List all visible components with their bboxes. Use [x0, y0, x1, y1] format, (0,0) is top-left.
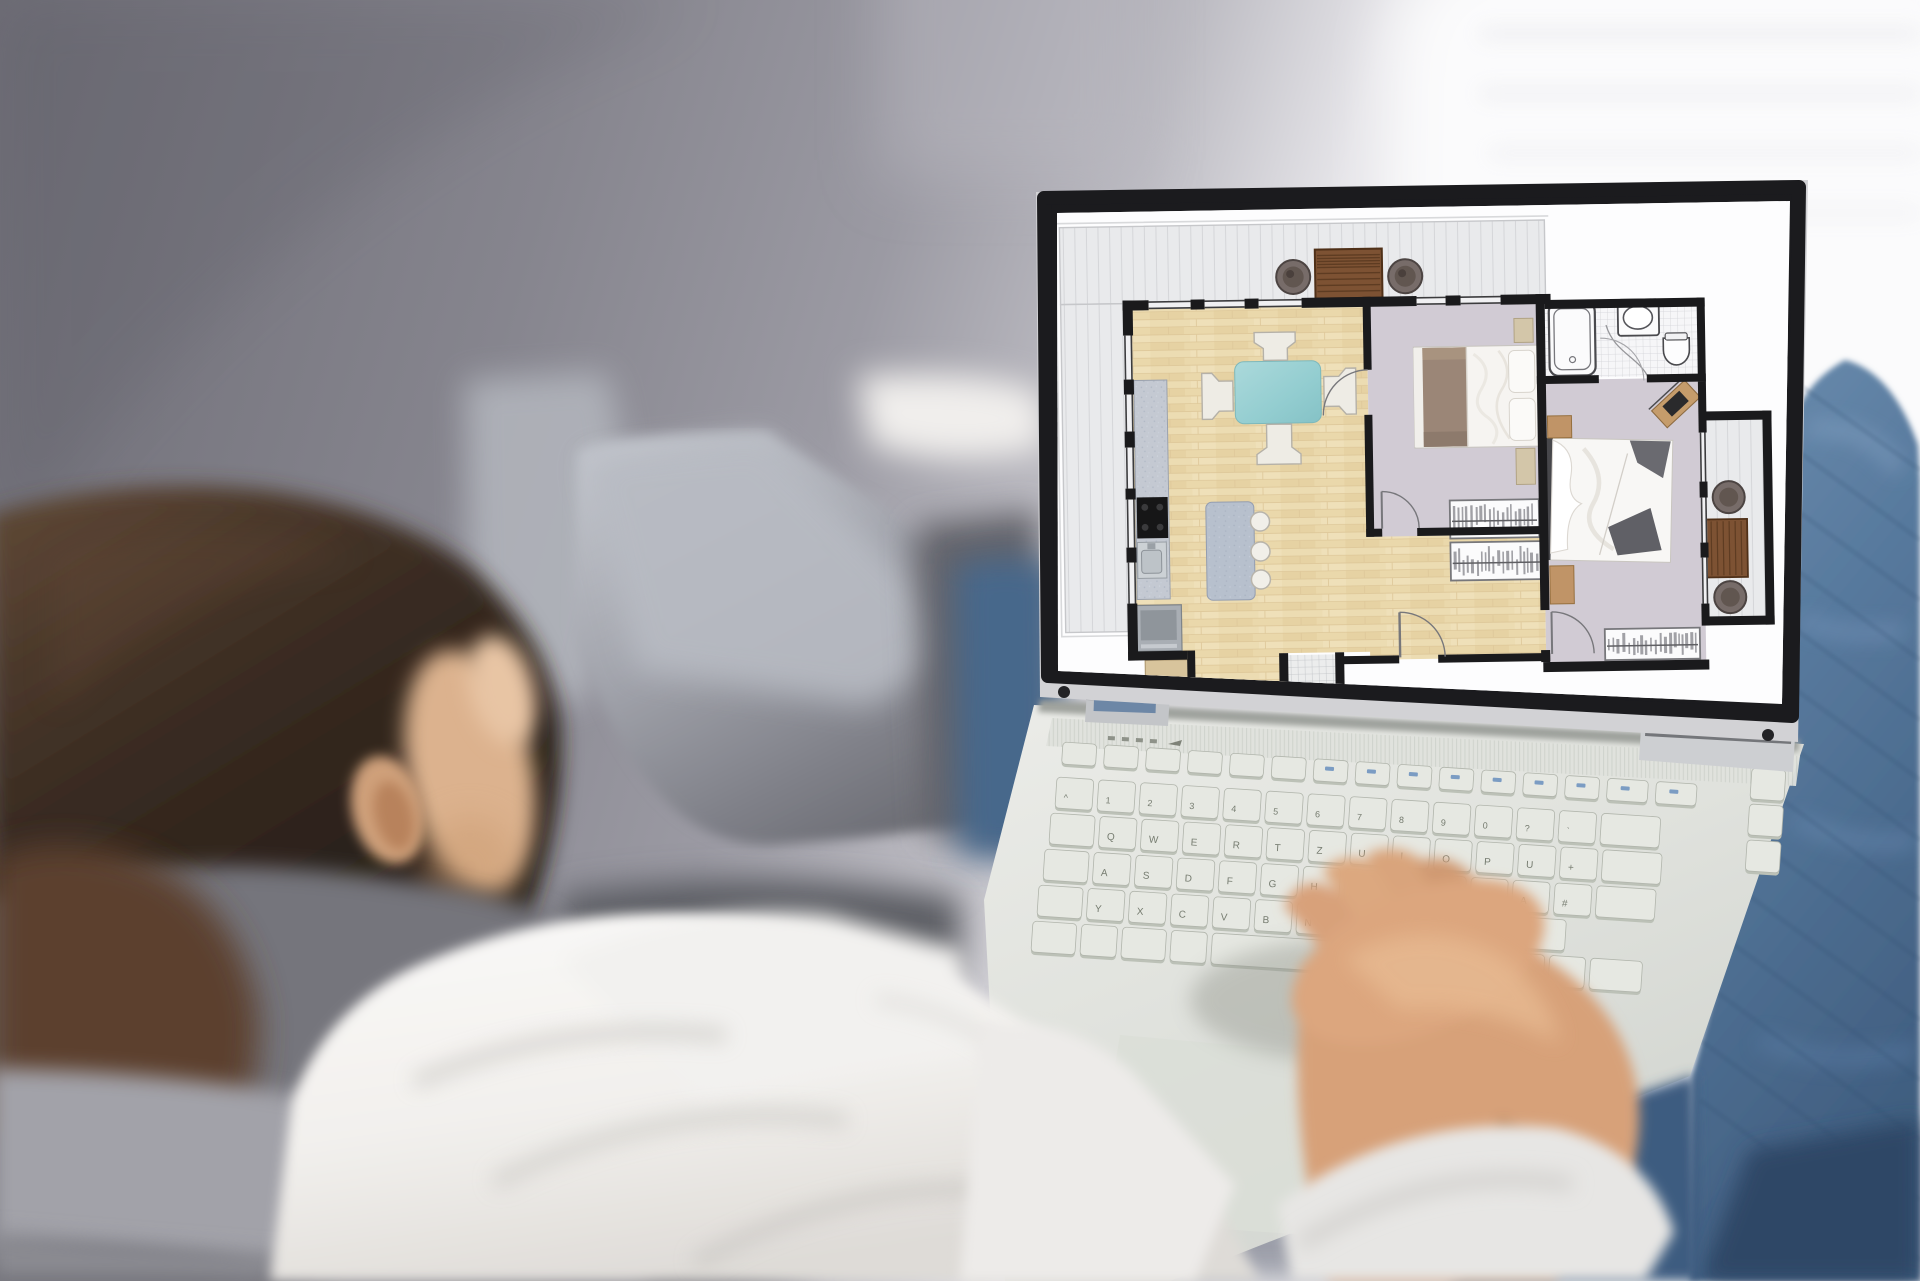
- svg-text:A: A: [1101, 868, 1109, 879]
- svg-text:7: 7: [1357, 812, 1363, 822]
- svg-text:D: D: [1184, 873, 1192, 884]
- svg-text:6: 6: [1315, 809, 1321, 819]
- svg-text:1: 1: [1105, 795, 1111, 805]
- svg-text:F: F: [1226, 876, 1233, 887]
- svg-text:Y: Y: [1095, 904, 1103, 915]
- svg-text:?: ?: [1524, 823, 1530, 833]
- svg-text:0: 0: [1482, 820, 1488, 830]
- svg-text:C: C: [1178, 909, 1186, 920]
- svg-text:5: 5: [1273, 806, 1279, 816]
- svg-text:P: P: [1484, 857, 1492, 868]
- svg-text:E: E: [1190, 837, 1198, 848]
- svg-text:T: T: [1274, 843, 1281, 854]
- svg-text:9: 9: [1440, 818, 1446, 828]
- svg-text:U: U: [1526, 860, 1534, 871]
- svg-text:R: R: [1232, 840, 1240, 851]
- svg-text:8: 8: [1399, 815, 1405, 825]
- svg-text:+: +: [1568, 862, 1575, 873]
- svg-text:2: 2: [1147, 798, 1153, 808]
- svg-text:U: U: [1358, 848, 1366, 859]
- svg-text:B: B: [1262, 915, 1270, 926]
- svg-text:4: 4: [1231, 804, 1237, 814]
- svg-text:Q: Q: [1107, 832, 1116, 844]
- svg-text:Z: Z: [1316, 846, 1323, 857]
- svg-text:G: G: [1268, 879, 1277, 891]
- svg-text:V: V: [1220, 912, 1228, 923]
- svg-text:X: X: [1136, 907, 1144, 918]
- svg-text:W: W: [1148, 835, 1159, 847]
- svg-text:S: S: [1142, 871, 1150, 882]
- svg-text:3: 3: [1189, 801, 1195, 811]
